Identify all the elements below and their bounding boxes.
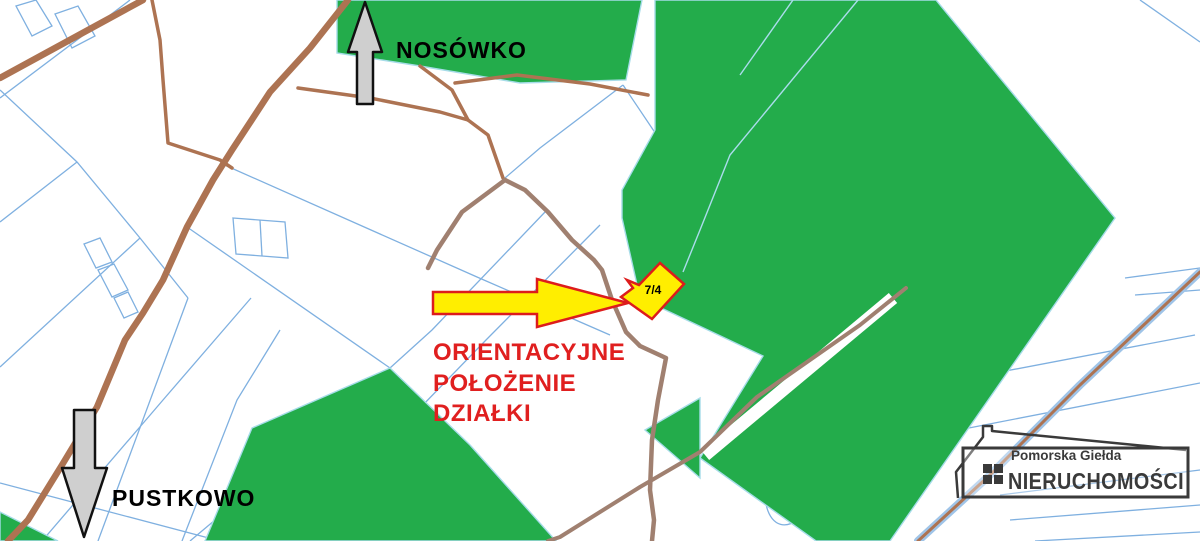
cadastral-map: NOSÓWKO PUSTKOWO 7/4 ORIENTACYJNE POŁOŻE… — [0, 0, 1200, 541]
logo-title: NIERUCHOMOŚCI — [1008, 467, 1184, 494]
annotation-line-1: ORIENTACYJNE — [433, 339, 625, 366]
parcel-number-label: 7/4 — [645, 283, 662, 297]
annotation-line-2: POŁOŻENIE — [433, 370, 576, 397]
south-village-label: PUSTKOWO — [112, 485, 255, 511]
annotation-line-3: DZIAŁKI — [433, 400, 531, 427]
logo-subtitle: Pomorska Giełda — [1011, 448, 1122, 463]
north-village-label: NOSÓWKO — [396, 36, 527, 63]
map-canvas: NOSÓWKO PUSTKOWO 7/4 ORIENTACYJNE POŁOŻE… — [0, 0, 1200, 541]
